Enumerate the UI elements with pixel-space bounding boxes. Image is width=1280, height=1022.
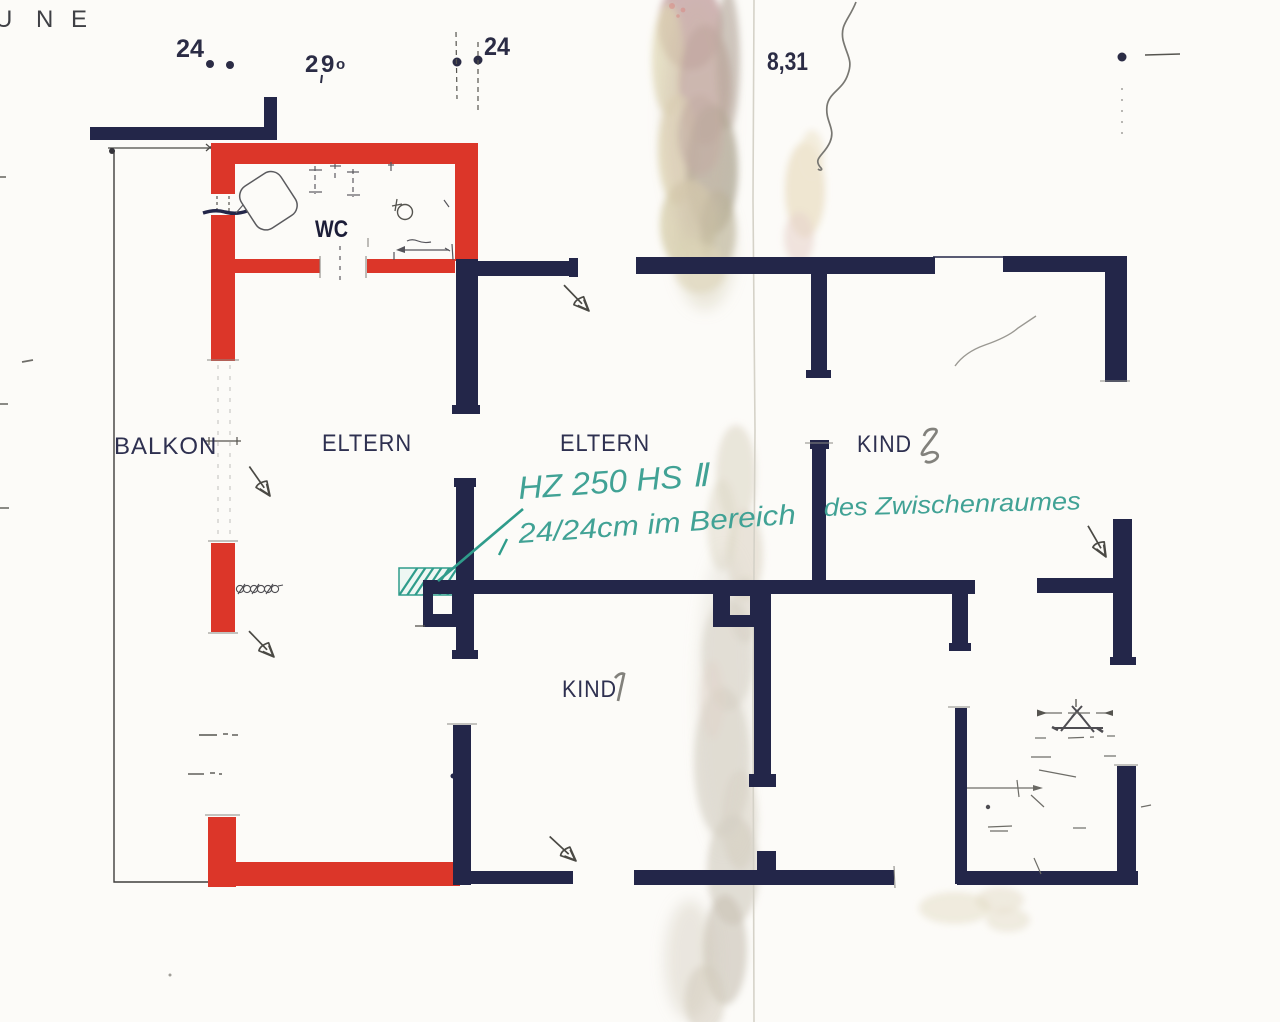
svg-text:ELTERN: ELTERN	[322, 430, 412, 457]
svg-text:KIND: KIND	[562, 676, 617, 703]
svg-text:9: 9	[321, 51, 334, 78]
svg-text:E: E	[71, 6, 87, 33]
svg-text:o: o	[336, 56, 345, 73]
svg-text:U: U	[0, 6, 12, 33]
svg-text:2: 2	[305, 51, 318, 78]
svg-text:ELTERN: ELTERN	[560, 430, 650, 457]
svg-text:24: 24	[176, 35, 204, 63]
svg-text:BALKON: BALKON	[114, 433, 217, 460]
svg-text:24: 24	[484, 33, 510, 61]
svg-text:KIND: KIND	[857, 431, 912, 458]
svg-text:N: N	[36, 6, 53, 33]
svg-text:WC: WC	[315, 216, 348, 243]
svg-text:8,31: 8,31	[767, 48, 808, 76]
